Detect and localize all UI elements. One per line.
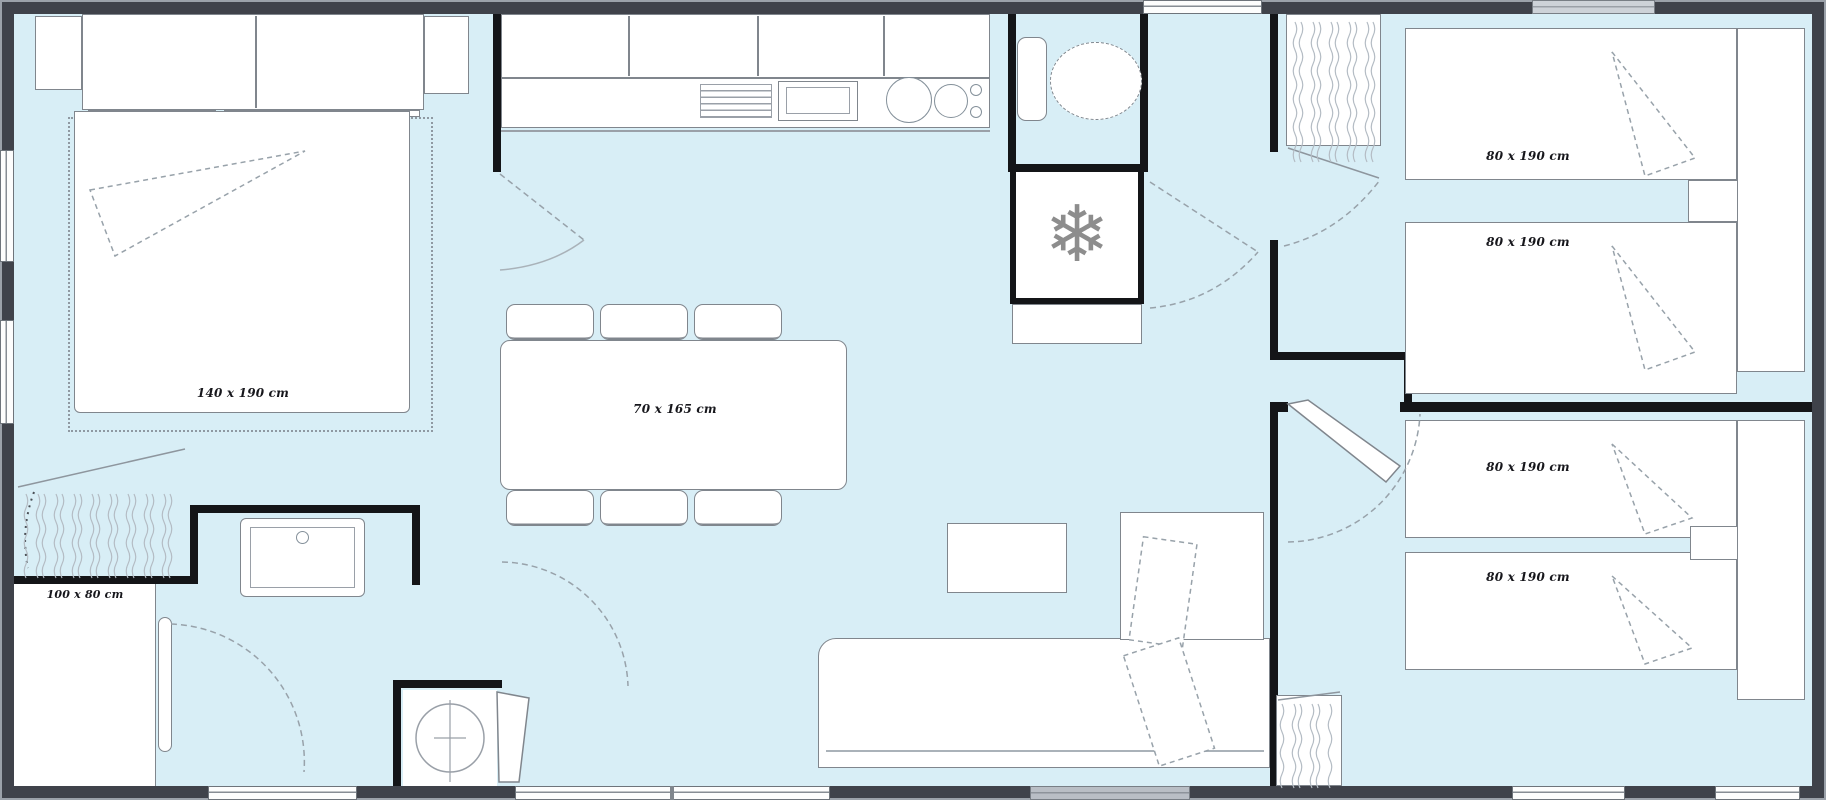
curtain-arc xyxy=(25,492,34,568)
door-leaf xyxy=(497,692,529,782)
clothes-hatch-line xyxy=(132,494,136,578)
clothes-hatch-line xyxy=(1316,704,1320,788)
clothes-hatch-line xyxy=(1353,22,1357,162)
pillow xyxy=(1129,537,1197,648)
blanket-fold xyxy=(1612,576,1692,664)
clothes-hatch-line xyxy=(1310,704,1314,788)
floorplan-canvas: 140 x 190 cm ❄ 80 x 190 cm 80 x 190 cm 8… xyxy=(0,0,1826,800)
door-swing-arc xyxy=(1150,252,1258,308)
clothes-hatch-line xyxy=(1298,704,1302,788)
clothes-hatch-line xyxy=(1329,22,1333,162)
clothes-hatch-line xyxy=(96,494,100,578)
clothes-hatch-line xyxy=(1317,22,1321,162)
clothes-hatch-line xyxy=(150,494,154,578)
clothes-hatch-line xyxy=(1335,22,1339,162)
door-leaf-line xyxy=(1150,182,1258,252)
clothes-hatch-line xyxy=(114,494,118,578)
blanket-fold xyxy=(90,151,305,256)
door-swing-arc xyxy=(500,240,584,270)
clothes-hatch-line xyxy=(36,494,40,578)
clothes-hatch-line xyxy=(1365,22,1369,162)
blanket-fold xyxy=(1612,444,1692,534)
wardrobe-front-rail xyxy=(1278,692,1340,700)
clothes-hatch-line xyxy=(60,494,64,578)
clothes-hatch-line xyxy=(1293,22,1297,162)
clothes-hatch-line xyxy=(162,494,166,578)
door-leaf xyxy=(1288,400,1400,482)
clothes-hatch-line xyxy=(54,494,58,578)
clothes-hatch-line xyxy=(1328,704,1332,788)
door-leaf-line xyxy=(500,174,584,240)
door-swing-arc xyxy=(502,562,628,686)
clothes-hatch-line xyxy=(78,494,82,578)
door-swing-arc xyxy=(171,624,304,772)
decorations-layer xyxy=(0,0,1826,800)
clothes-hatch-line xyxy=(108,494,112,578)
clothes-hatch-line xyxy=(126,494,130,578)
clothes-hatch-line xyxy=(1311,22,1315,162)
door-swing-arc xyxy=(1284,180,1380,246)
clothes-hatch-line xyxy=(1347,22,1351,162)
clothes-hatch-line xyxy=(90,494,94,578)
clothes-hatch-line xyxy=(1299,22,1303,162)
clothes-hatch-line xyxy=(24,494,28,578)
clothes-hatch-line xyxy=(1371,22,1375,162)
clothes-hatch-line xyxy=(168,494,172,578)
blanket-fold xyxy=(1612,246,1695,370)
clothes-hatch-line xyxy=(1292,704,1296,788)
blanket-fold xyxy=(1612,52,1695,176)
clothes-hatch-line xyxy=(144,494,148,578)
clothes-hatch-line xyxy=(72,494,76,578)
wardrobe-front-rail xyxy=(18,449,185,487)
pillow xyxy=(1123,638,1214,766)
clothes-hatch-line xyxy=(42,494,46,578)
clothes-hatch-line xyxy=(1280,704,1284,788)
